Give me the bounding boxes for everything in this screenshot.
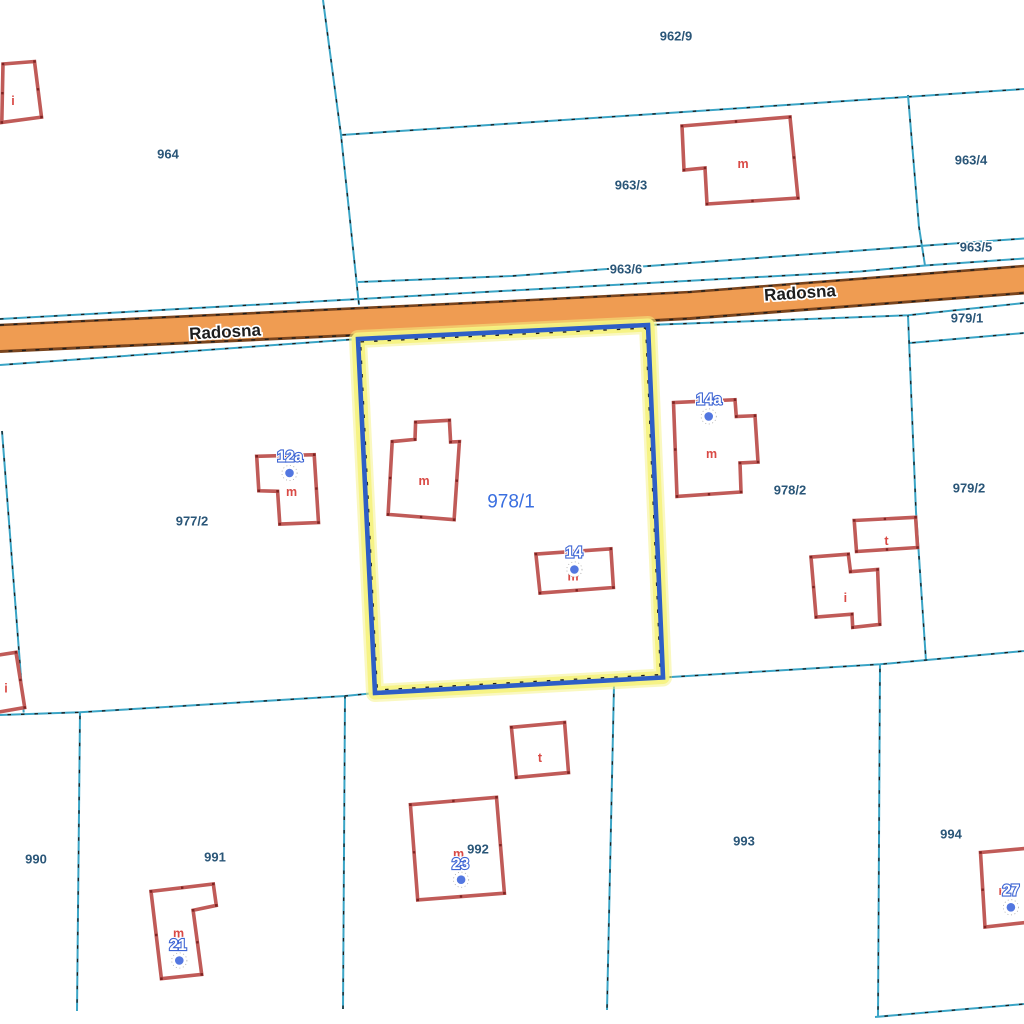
svg-text:979/1: 979/1: [951, 311, 984, 326]
svg-text:962/9: 962/9: [660, 29, 693, 44]
svg-text:963/4: 963/4: [955, 153, 988, 168]
svg-text:978/1: 978/1: [487, 492, 535, 513]
svg-text:964: 964: [157, 147, 179, 162]
svg-text:14: 14: [565, 545, 583, 562]
svg-text:14a: 14a: [696, 392, 722, 409]
svg-text:12a: 12a: [277, 449, 303, 466]
svg-text:23: 23: [452, 856, 470, 873]
svg-text:Radosna: Radosna: [189, 320, 262, 343]
svg-text:m: m: [706, 447, 717, 461]
svg-text:m: m: [418, 474, 429, 488]
svg-text:990: 990: [25, 852, 47, 867]
svg-text:m: m: [737, 157, 748, 171]
svg-text:993: 993: [733, 834, 755, 849]
svg-text:991: 991: [204, 850, 226, 865]
svg-text:27: 27: [1002, 883, 1019, 900]
svg-text:21: 21: [169, 937, 187, 954]
svg-text:992: 992: [467, 842, 489, 857]
svg-text:i: i: [844, 591, 847, 605]
svg-text:m: m: [286, 485, 297, 499]
svg-text:i: i: [11, 94, 14, 108]
svg-text:963/5: 963/5: [960, 240, 993, 255]
svg-text:977/2: 977/2: [176, 514, 209, 529]
svg-text:963/6: 963/6: [610, 262, 643, 277]
svg-text:979/2: 979/2: [953, 481, 986, 496]
svg-text:i: i: [4, 682, 7, 696]
svg-text:963/3: 963/3: [615, 178, 648, 193]
svg-text:978/2: 978/2: [774, 483, 807, 498]
svg-text:994: 994: [940, 827, 962, 842]
